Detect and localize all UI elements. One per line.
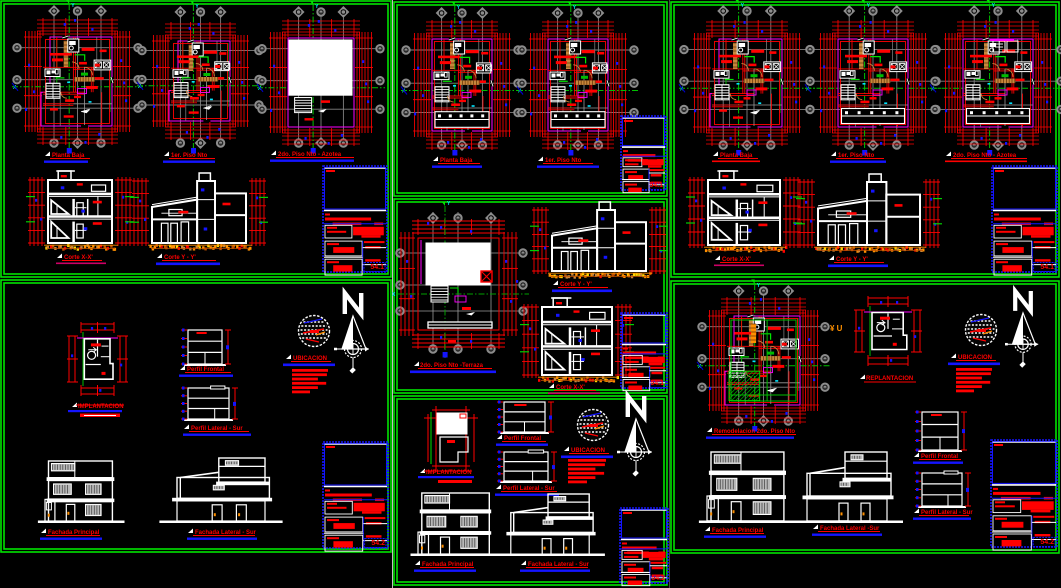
- svg-text:¥ U: ¥ U: [830, 324, 843, 333]
- svg-text:54.1: 54.1: [1040, 264, 1054, 271]
- svg-text:54.2: 54.2: [651, 575, 665, 582]
- svg-text:REPLANTACION: REPLANTACION: [866, 376, 913, 382]
- svg-text:54.1: 54.1: [649, 182, 663, 189]
- svg-text:54.2: 54.2: [371, 540, 385, 547]
- svg-text:54.1: 54.1: [650, 380, 664, 387]
- svg-text:54.2: 54.2: [1040, 539, 1054, 546]
- svg-text:54.1: 54.1: [370, 264, 384, 271]
